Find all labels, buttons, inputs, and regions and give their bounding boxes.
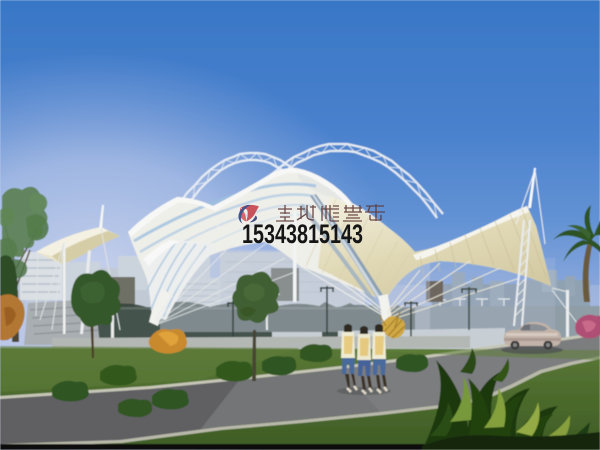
svg-text:15343815143: 15343815143 [242, 219, 363, 249]
